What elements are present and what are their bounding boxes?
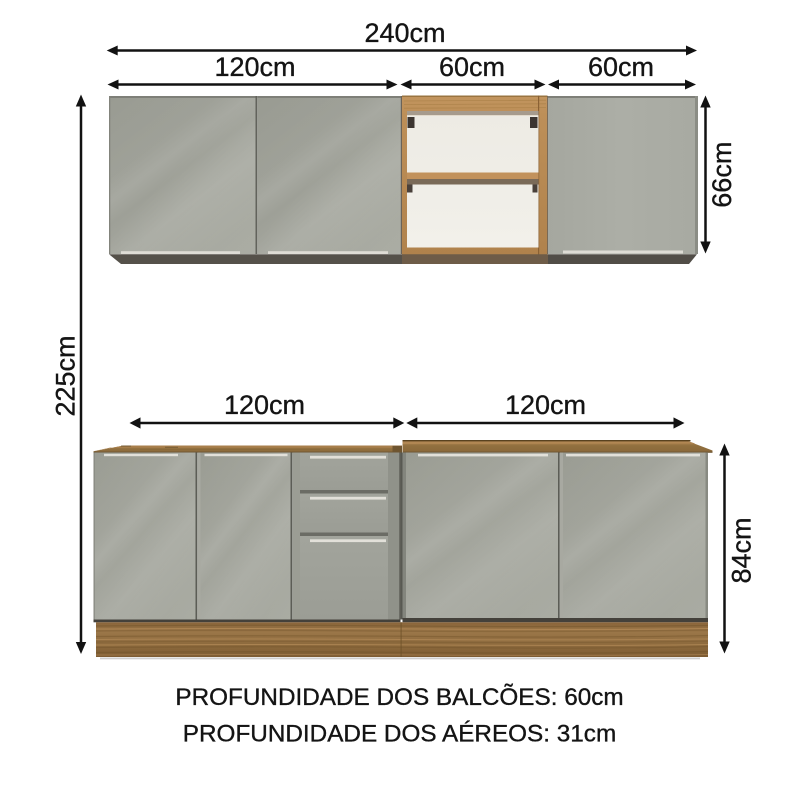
svg-text:PROFUNDIDADE DOS AÉREOS: 31cm: PROFUNDIDADE DOS AÉREOS: 31cm (183, 720, 616, 747)
svg-text:225cm: 225cm (51, 335, 81, 416)
svg-text:120cm: 120cm (505, 390, 586, 420)
svg-text:60cm: 60cm (588, 52, 654, 82)
svg-text:66cm: 66cm (707, 142, 737, 208)
svg-text:PROFUNDIDADE DOS BALCÕES: 60cm: PROFUNDIDADE DOS BALCÕES: 60cm (175, 683, 623, 711)
svg-text:120cm: 120cm (224, 390, 305, 420)
svg-text:240cm: 240cm (364, 18, 445, 48)
svg-text:84cm: 84cm (727, 517, 757, 583)
svg-text:120cm: 120cm (214, 52, 295, 82)
svg-text:60cm: 60cm (439, 52, 505, 82)
